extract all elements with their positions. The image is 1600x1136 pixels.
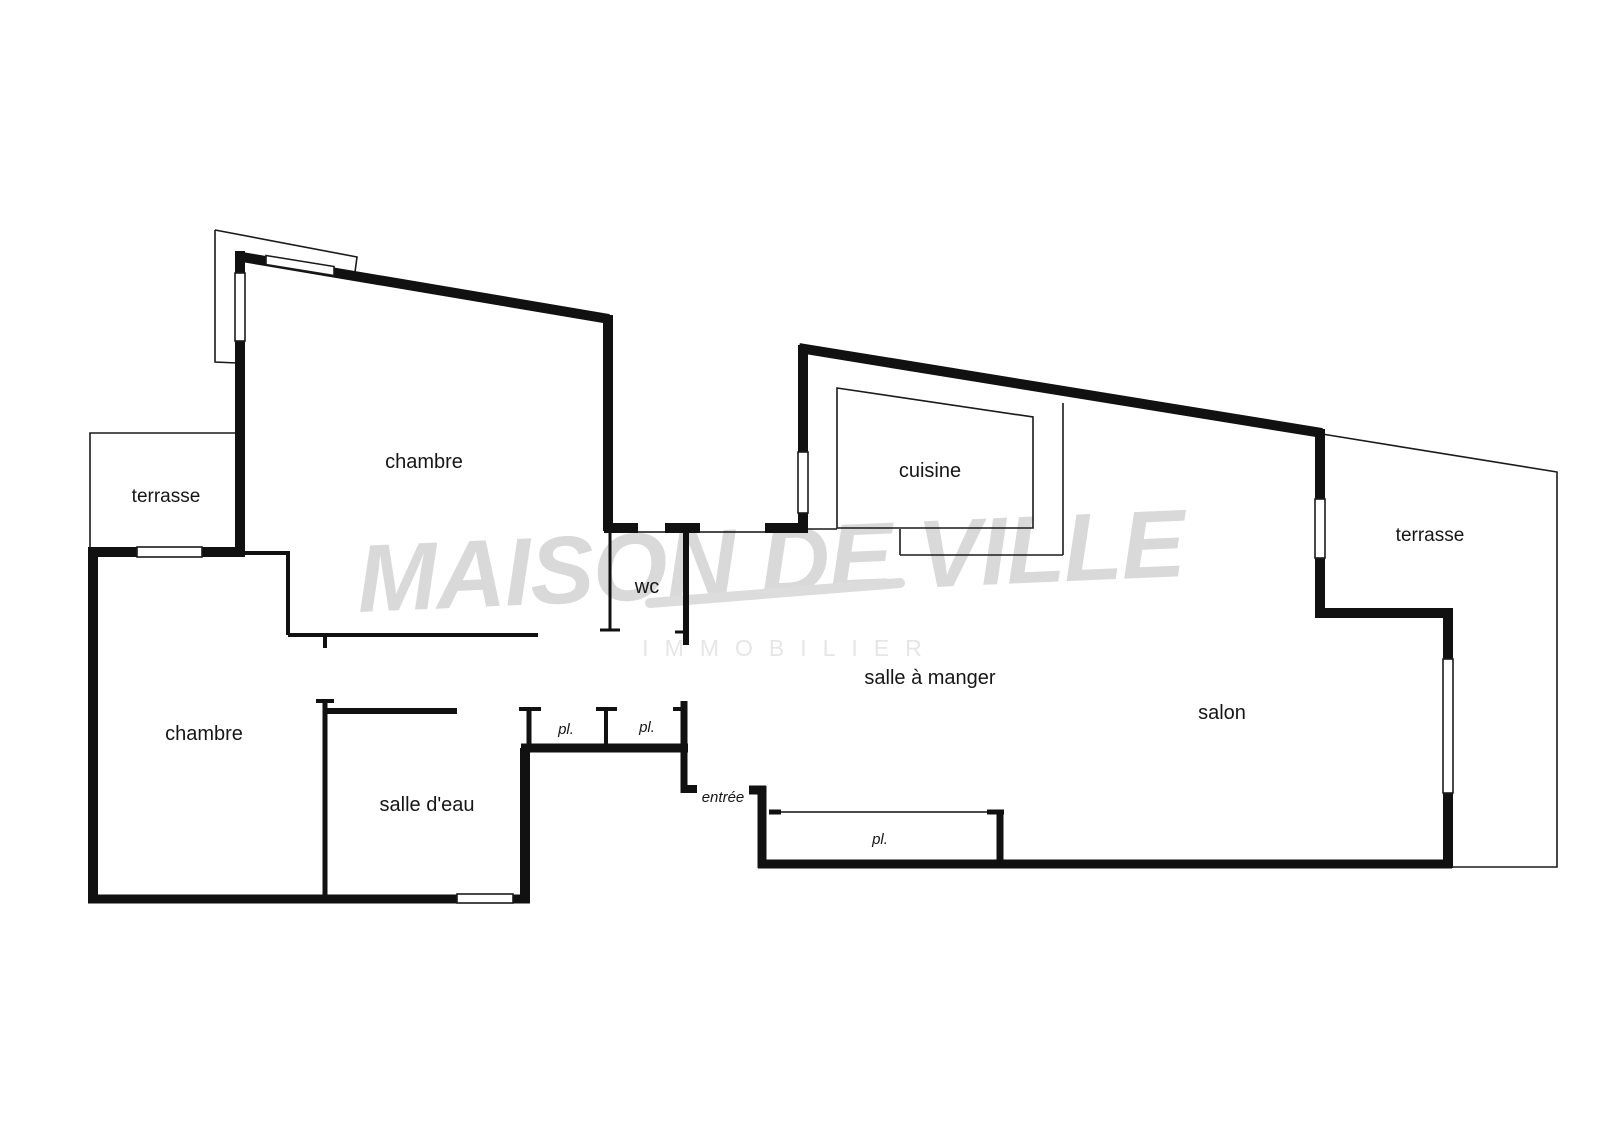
label-terrasse-right: terrasse [1396,525,1465,546]
window [266,256,334,276]
window [235,273,245,341]
label-wc: wc [634,576,659,598]
label-chambre-bottom: chambre [165,723,243,745]
label-salle-a-manger: salle à manger [864,667,996,689]
window [457,894,513,903]
label-chambre-top: chambre [385,451,463,473]
label-salon: salon [1198,702,1246,724]
label-placard-small-right: pl. [638,719,655,736]
floor-plan: MAISON DE VILLE IMMOBILIER [0,0,1600,1131]
window [1315,499,1325,558]
label-terrasse-upper-left: terrasse [132,486,201,507]
label-entree: entrée [702,789,745,806]
wall [799,348,1322,433]
terrasse-right-outline [1322,434,1557,867]
window [798,452,808,513]
window [137,547,202,557]
watermark-brand-text: MAISON DE VILLE [355,490,1191,633]
floor-plan-page: MAISON DE VILLE IMMOBILIER [0,0,1600,1131]
label-placard-large: pl. [871,831,888,848]
balcony-outline-left [215,230,237,363]
window [1443,659,1453,793]
label-salle-deau: salle d'eau [380,794,475,816]
label-placard-small-left: pl. [557,721,574,738]
label-cuisine: cuisine [899,460,961,482]
